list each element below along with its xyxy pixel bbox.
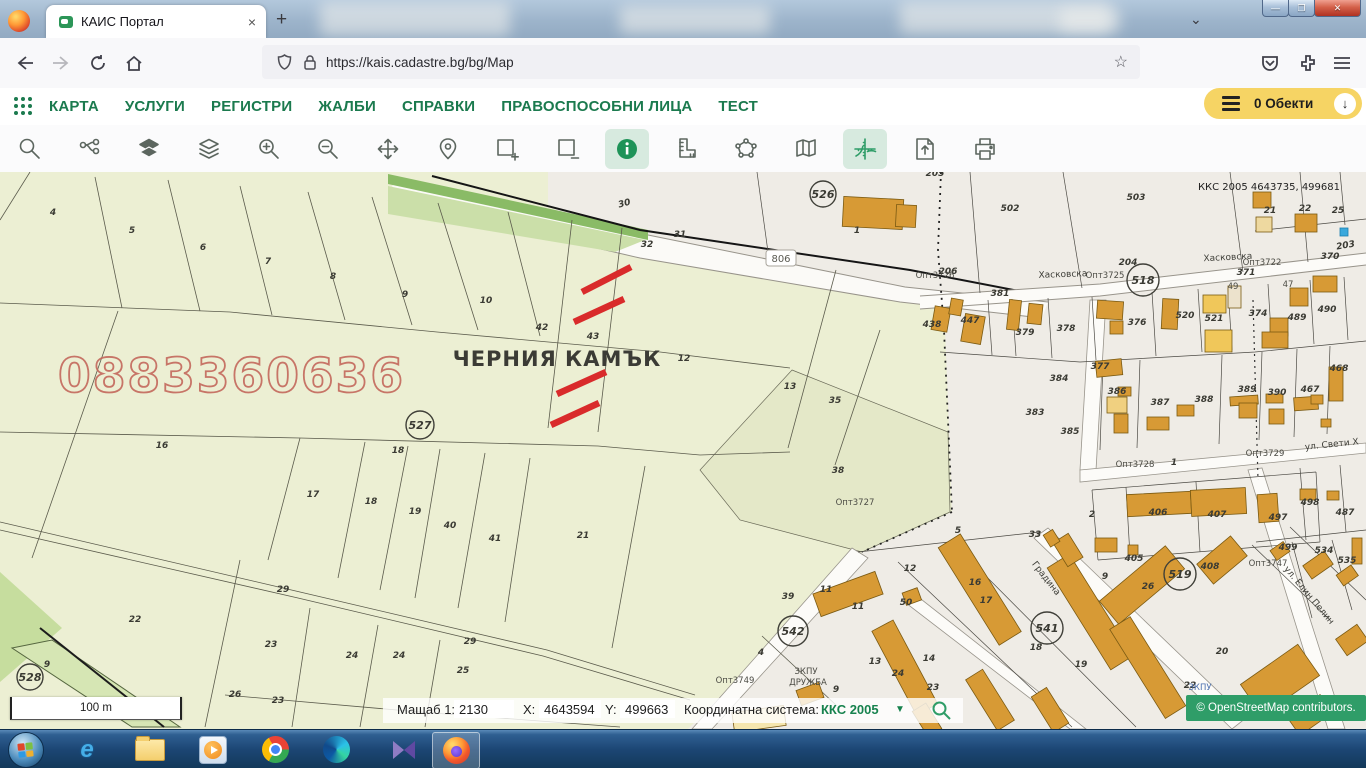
map-label: 17 <box>307 490 320 500</box>
url-bar[interactable]: https://kais.cadastre.bg/bg/Map ☆ <box>262 45 1140 79</box>
map-label: Опт3727 <box>836 498 875 508</box>
map-label: 376 <box>1128 318 1147 328</box>
map-label: 438 <box>922 320 942 330</box>
start-button[interactable] <box>8 732 44 768</box>
map-label: Опт3729 <box>1246 449 1285 459</box>
window-minimize-button[interactable]: — <box>1262 0 1289 17</box>
windows-flag-icon <box>17 742 34 758</box>
map-label: 534 <box>1315 546 1334 556</box>
map-label: 33 <box>1029 530 1042 540</box>
tool-topology[interactable] <box>60 125 120 172</box>
crs-label: Координатна система: <box>684 702 819 717</box>
taskbar-chrome[interactable] <box>256 734 294 765</box>
forward-icon[interactable] <box>50 51 74 75</box>
map-label: 378 <box>1057 324 1076 334</box>
map-label: 49 <box>1228 282 1239 292</box>
map-label: 8 <box>330 272 336 282</box>
map-label: 2 <box>1089 510 1095 520</box>
menu-zhalbi[interactable]: ЖАЛБИ <box>318 98 376 115</box>
map-label: 383 <box>1026 408 1045 418</box>
scale-bar: 100 m <box>10 697 182 720</box>
window-close-button[interactable]: ✕ <box>1314 0 1361 17</box>
map-label: 497 <box>1268 513 1289 523</box>
map-label: 381 <box>991 289 1010 299</box>
map-label: 467 <box>1300 385 1321 395</box>
osm-attribution[interactable]: © OpenStreetMap contributors. <box>1186 695 1366 721</box>
map-label: 21 <box>1264 206 1277 216</box>
map-label: 528 <box>19 671 42 684</box>
map-label: 386 <box>1108 387 1127 397</box>
tab-list-chevron-icon[interactable]: ⌄ <box>1190 11 1202 28</box>
taskbar: e EN ▲ 18:34 2.4.2026 г. <box>0 729 1366 768</box>
tool-location[interactable] <box>418 125 478 172</box>
map-label: 14 <box>923 654 936 664</box>
map-label: 5 <box>955 526 961 536</box>
map-label: 11 <box>820 585 833 595</box>
tool-search[interactable] <box>0 125 60 172</box>
map-label: 22 <box>129 615 142 625</box>
coordinate-readout: ККС 2005 4643735, 499681 <box>1198 182 1340 193</box>
back-icon[interactable] <box>12 51 36 75</box>
map-label: 387 <box>1151 398 1171 408</box>
map-label: 447 <box>960 316 981 326</box>
map-label: 10 <box>480 296 493 306</box>
map-label: 1 <box>1171 458 1177 468</box>
x-label: X: <box>523 702 535 717</box>
map-label: 5 <box>129 226 135 236</box>
map-label: 16 <box>156 441 169 451</box>
home-icon[interactable] <box>122 51 146 75</box>
reload-icon[interactable] <box>86 51 110 75</box>
map-label: 50 <box>900 598 913 608</box>
map-label: 13 <box>869 657 882 667</box>
y-input[interactable]: 499663 <box>620 700 675 718</box>
map-label: 18 <box>1030 643 1043 653</box>
tool-polygon[interactable] <box>716 125 776 172</box>
menu-registri[interactable]: РЕГИСТРИ <box>211 98 292 115</box>
map-label: 23 <box>272 696 285 706</box>
map-label: 390 <box>1268 388 1287 398</box>
tool-layers[interactable] <box>179 125 239 172</box>
portal-menubar: КАРТА УСЛУГИ РЕГИСТРИ ЖАЛБИ СПРАВКИ ПРАВ… <box>0 88 1366 125</box>
map-label: 535 <box>1338 556 1357 566</box>
map-label: 9 <box>1102 572 1108 582</box>
map-label: 35 <box>829 396 842 406</box>
new-tab-button[interactable]: + <box>276 9 287 31</box>
map-label: 370 <box>1321 252 1340 262</box>
map-label: 487 <box>1335 508 1356 518</box>
map-label: 521 <box>1205 314 1224 324</box>
map-label: 23 <box>927 683 940 693</box>
map-label: 490 <box>1317 305 1337 315</box>
map-label: 24 <box>393 651 406 661</box>
tab-close-icon[interactable]: × <box>248 14 256 30</box>
objects-download-icon[interactable]: ↓ <box>1334 93 1356 115</box>
menu-pravosposobni-litsa[interactable]: ПРАВОСПОСОБНИ ЛИЦА <box>501 98 692 115</box>
watermark-phone: 0883360636 <box>58 349 405 404</box>
map-label: ЗКПУ <box>1188 683 1212 693</box>
objects-list-icon <box>1222 93 1240 114</box>
map-label: 9 <box>402 290 408 300</box>
map-label: 384 <box>1050 374 1069 384</box>
y-label: Y: <box>605 702 617 717</box>
map-label: 377 <box>1091 362 1111 372</box>
map-label: 41 <box>488 534 502 544</box>
map-label: 503 <box>1127 193 1146 203</box>
map-label: 12 <box>678 354 691 364</box>
map-label: 21 <box>577 531 590 541</box>
map-label: 526 <box>812 188 835 201</box>
menu-uslugi[interactable]: УСЛУГИ <box>125 98 185 115</box>
map-label: 42 <box>535 323 549 333</box>
map-label: 9 <box>44 660 50 670</box>
tool-export[interactable] <box>895 125 955 172</box>
map-label: 408 <box>1200 562 1220 572</box>
map-label: 26 <box>229 690 242 700</box>
objects-button[interactable]: 0 Обекти ↓ <box>1204 88 1362 119</box>
tool-print[interactable] <box>955 125 1015 172</box>
crs-select[interactable]: ККС 2005 <box>821 702 879 717</box>
tool-info[interactable] <box>597 125 657 172</box>
map-label: 499 <box>1278 543 1298 553</box>
map-statusbar: Мащаб 1: 2130 X: 4643594 Y: 499663 Коорд… <box>383 698 963 723</box>
place-name-label: ЧЕРНИЯ КАМЪК <box>453 347 662 371</box>
map-label: 20 <box>1216 647 1229 657</box>
menu-test[interactable]: ТЕСТ <box>718 98 758 115</box>
taskbar-edge[interactable] <box>317 734 355 765</box>
map-label: 520 <box>1176 311 1195 321</box>
tool-pan[interactable] <box>358 125 418 172</box>
map-label: 18 <box>392 446 405 456</box>
map-label: 388 <box>1195 395 1214 405</box>
map-label: 9 <box>833 685 839 695</box>
taskbar-explorer[interactable] <box>131 734 169 765</box>
map-label: 468 <box>1329 364 1349 374</box>
map-label: 385 <box>1061 427 1080 437</box>
map-label: 25 <box>457 666 470 676</box>
map-label: 502 <box>1001 204 1020 214</box>
tool-zoom-in[interactable] <box>239 125 299 172</box>
url-text[interactable]: https://kais.cadastre.bg/bg/Map <box>326 55 1114 70</box>
map-label: 11 <box>852 602 865 612</box>
cadastral-map[interactable]: 806 ЧЕРНИЯ КАМЪК 0883360636 ККС 2005 464… <box>0 172 1366 729</box>
map-label: 406 <box>1148 508 1168 518</box>
map-label: 29 <box>464 637 477 647</box>
tab-favicon-icon <box>59 16 73 28</box>
map-label: 19 <box>1075 660 1088 670</box>
map-label: 389 <box>1238 385 1257 395</box>
map-label: 32 <box>641 240 654 250</box>
map-label: 38 <box>832 466 845 476</box>
taskbar-firefox-active[interactable] <box>432 732 480 768</box>
map-label: 47 <box>1283 280 1294 290</box>
taskbar-internet-explorer[interactable]: e <box>68 734 106 765</box>
x-input[interactable]: 4643594 <box>539 700 601 718</box>
map-label: 519 <box>1169 568 1192 581</box>
menu-spravki[interactable]: СПРАВКИ <box>402 98 475 115</box>
map-toolbar <box>0 125 1366 173</box>
map-label: 13 <box>784 382 797 392</box>
map-label: 23 <box>265 640 278 650</box>
map-label: 40 <box>443 521 457 531</box>
tool-zoom-out[interactable] <box>298 125 358 172</box>
map-label: 31 <box>674 230 687 240</box>
shield-icon <box>276 53 293 71</box>
browser-tab[interactable]: КАИС Портал × <box>46 5 266 38</box>
scale-label: Мащаб 1: <box>397 702 455 717</box>
map-label: 16 <box>969 578 982 588</box>
map-label: 4 <box>49 208 56 218</box>
taskbar-kmplayer[interactable] <box>379 734 417 765</box>
map-label: 542 <box>782 625 805 638</box>
lock-icon <box>303 54 317 71</box>
map-label: 374 <box>1249 309 1268 319</box>
browser-navbar: https://kais.cadastre.bg/bg/Map ☆ <box>0 38 1366 89</box>
bookmark-star-icon[interactable]: ☆ <box>1114 52 1128 72</box>
map-label: 518 <box>1132 274 1155 287</box>
map-label: 12 <box>904 564 917 574</box>
map-label: 527 <box>409 419 432 432</box>
map-label: 4 <box>757 648 764 658</box>
crs-caret-icon[interactable]: ▼ <box>895 704 905 715</box>
menu-hamburger-icon[interactable] <box>1330 51 1354 75</box>
map-label: 29 <box>277 585 290 595</box>
map-label: 43 <box>586 332 600 342</box>
map-label: 371 <box>1237 268 1256 278</box>
map-label: 7 <box>265 257 272 267</box>
map-label: 405 <box>1124 554 1144 564</box>
map-label: Опт3725 <box>1086 271 1125 281</box>
tool-layers-filled[interactable] <box>119 125 179 172</box>
map-label: 6 <box>200 243 206 253</box>
objects-count: 0 Обекти <box>1254 96 1334 111</box>
firefox-icon <box>443 737 470 764</box>
pocket-icon[interactable] <box>1258 51 1282 75</box>
taskbar-media-player[interactable] <box>194 734 232 765</box>
map-label: Опт3747 <box>1249 559 1288 569</box>
firefox-app-icon <box>8 10 30 32</box>
road-badge: 806 <box>766 250 796 266</box>
map-label: ДРУЖБА <box>789 678 827 688</box>
map-label: 541 <box>1036 622 1059 635</box>
map-label: 24 <box>346 651 359 661</box>
map-label: Опт3749 <box>716 676 755 686</box>
map-label: 379 <box>1016 328 1035 338</box>
map-label: 25 <box>1332 206 1345 216</box>
menu-karta[interactable]: КАРТА <box>49 98 99 115</box>
map-label: 1 <box>854 226 860 236</box>
map-label: Хасковска <box>1038 269 1087 281</box>
map-label: Опт3728 <box>1116 460 1155 470</box>
map-label: 26 <box>1142 582 1155 592</box>
map-label: 19 <box>409 507 422 517</box>
map-label: 17 <box>980 596 993 606</box>
map-label: 18 <box>365 497 378 507</box>
map-label: 498 <box>1300 498 1320 508</box>
tool-map-sheets[interactable] <box>776 125 836 172</box>
extensions-icon[interactable] <box>1296 51 1320 75</box>
tool-select-remove[interactable] <box>537 125 597 172</box>
tool-measure[interactable] <box>657 125 717 172</box>
apps-grid-icon[interactable] <box>14 97 36 117</box>
window-maximize-button[interactable]: ❐ <box>1288 0 1315 17</box>
svg-text:806: 806 <box>771 254 790 265</box>
map-label: Опт3726 <box>916 271 955 281</box>
map-label: 205 <box>926 172 945 179</box>
map-label: 489 <box>1287 313 1307 323</box>
map-label: ЗКПУ <box>794 667 818 677</box>
tool-coordinates[interactable] <box>836 125 896 172</box>
map-label: 39 <box>782 592 795 602</box>
map-label: 22 <box>1299 204 1312 214</box>
tool-select-add[interactable] <box>478 125 538 172</box>
tab-title: КАИС Портал <box>81 14 248 29</box>
scale-input[interactable]: 2130 <box>454 700 514 718</box>
map-label: 407 <box>1207 510 1228 520</box>
map-search-button[interactable] <box>931 700 952 724</box>
map-label: 24 <box>892 669 905 679</box>
window-titlebar: КАИС Портал × + ⌄ — ❐ ✕ <box>0 0 1366 38</box>
